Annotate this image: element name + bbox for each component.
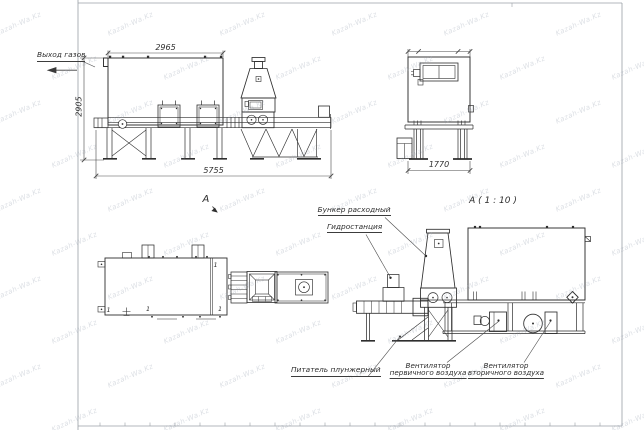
position-marker: 1: [214, 261, 218, 269]
plan-hopper-top: [247, 272, 277, 303]
secondary-air-fan: [524, 312, 557, 334]
dim-2965: 2965: [155, 43, 175, 52]
end-elevation-view: [397, 49, 474, 174]
gas-outlet-label: Выход газов: [37, 51, 85, 62]
plan-fan-box: [275, 272, 328, 303]
view-a-arrow-label: А: [203, 194, 210, 206]
furnace-body: [94, 58, 331, 128]
dim-1770: 1770: [429, 160, 449, 169]
plunger-feeder: [353, 298, 456, 341]
plunger-feeder-label: Питатель плунжерный: [291, 366, 381, 377]
support-frame: [103, 128, 321, 159]
position-marker: 1: [218, 305, 222, 313]
plan-body: [98, 245, 227, 319]
dim-2905: 2905: [74, 89, 83, 123]
gas-outlet-arrow: [48, 68, 77, 73]
hydraulic-station: [383, 275, 404, 302]
front-elevation-view: [48, 51, 333, 180]
end-view-frame: [397, 121, 473, 160]
section-box: [468, 226, 591, 300]
primary-air-fan-label-line2: первичного воздуха: [390, 369, 467, 377]
drawing-sheet: Kazah-Wa.KzKazah-Wa.KzKazah-Wa.KzKazah-W…: [0, 0, 644, 430]
furnace-hatches: [158, 101, 219, 128]
secondary-air-fan-label-line2: вторичного воздуха: [468, 369, 544, 377]
secondary-air-fan-label: Вентилятор вторичного воздуха: [468, 362, 544, 380]
primary-air-fan: [474, 312, 507, 332]
end-view-body: [408, 57, 474, 122]
dim-5755: 5755: [203, 166, 223, 175]
conveyor-and-truss: [227, 106, 331, 157]
section-leaders: [366, 218, 551, 377]
supply-hopper-label: Бункер расходный: [318, 206, 391, 217]
clamp-diamond: [567, 292, 578, 304]
primary-air-fan-label: Вентилятор первичного воздуха: [390, 362, 467, 380]
position-marker: 1: [107, 306, 111, 314]
section-hopper-tower: [421, 229, 457, 307]
hydraulic-station-label: Гидростанция: [327, 223, 382, 234]
position-marker: 1: [146, 305, 150, 313]
plan-feeder-ribbed: [229, 272, 248, 303]
section-a-title: А ( 1 : 10 ): [469, 196, 517, 206]
front-view-dimensions: [80, 51, 333, 180]
section-frame: [420, 292, 585, 334]
plan-view-arrow: [212, 207, 217, 213]
section-a-view: [353, 218, 591, 377]
